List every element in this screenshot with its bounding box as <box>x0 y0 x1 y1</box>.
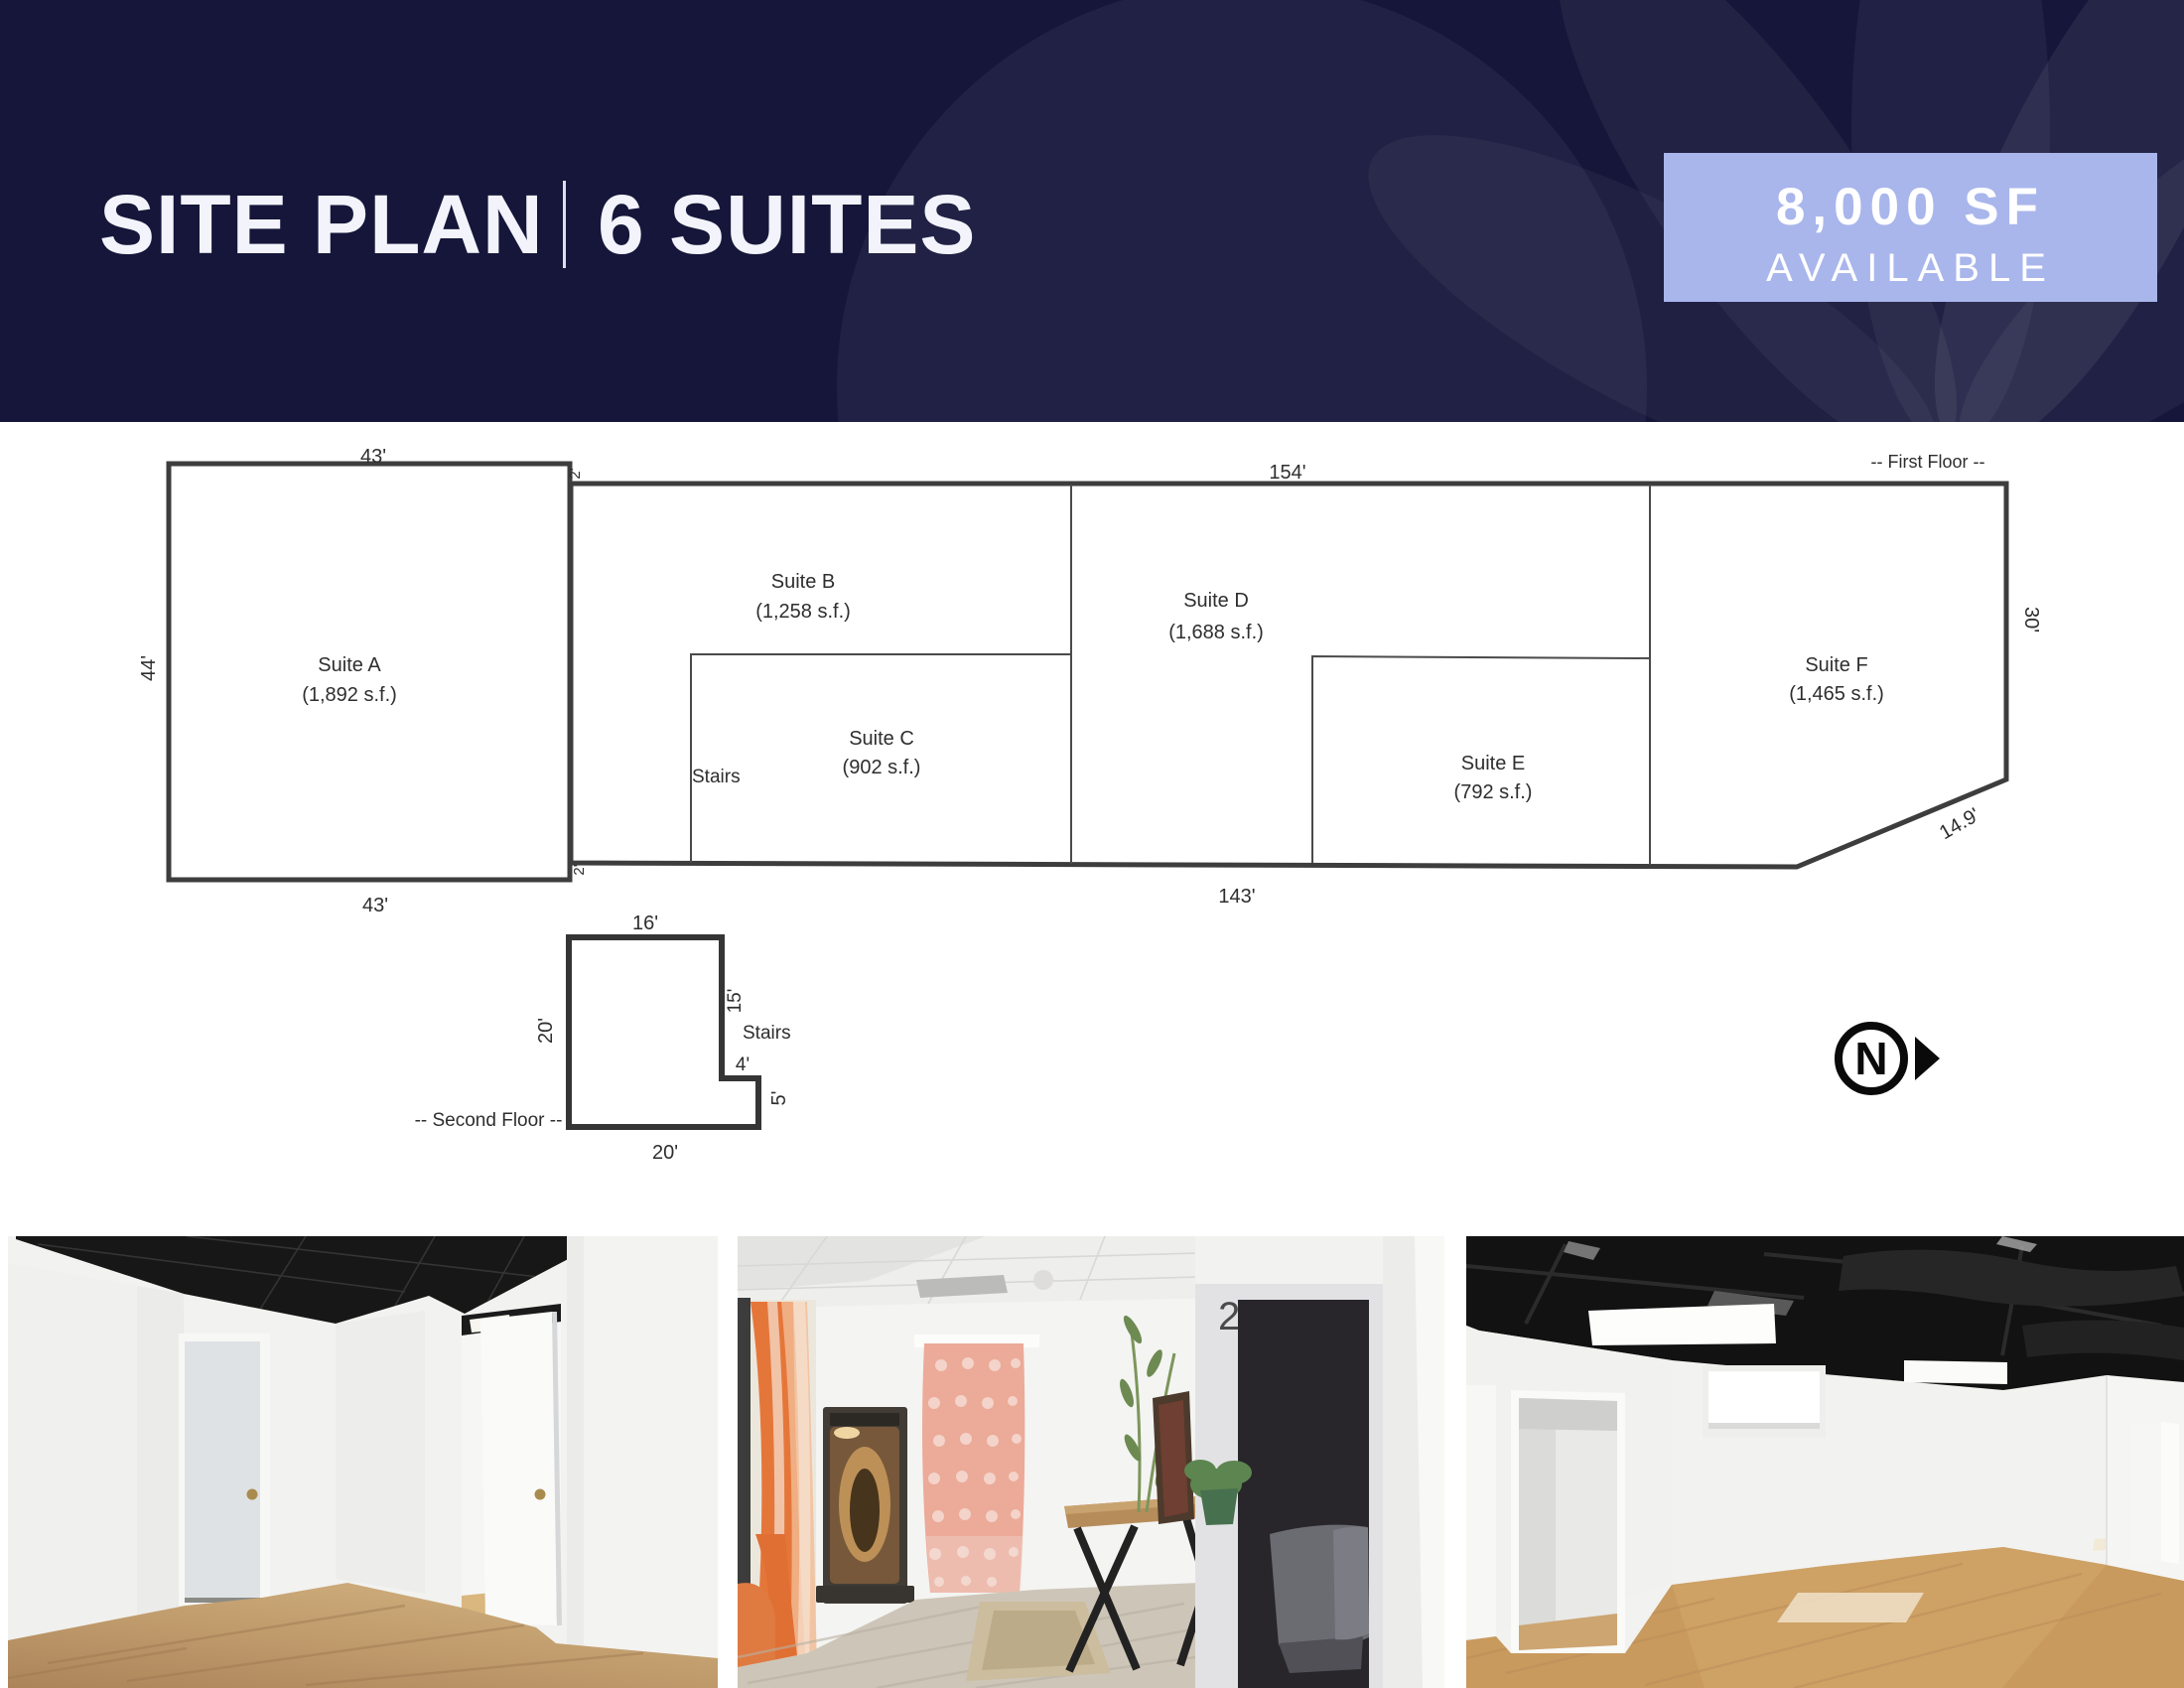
svg-text:43': 43' <box>362 895 388 916</box>
svg-text:20': 20' <box>652 1142 678 1164</box>
svg-text:Suite D: Suite D <box>1183 590 1249 612</box>
svg-text:Suite C: Suite C <box>849 728 914 750</box>
svg-text:2': 2' <box>571 864 588 875</box>
svg-text:(792 s.f.): (792 s.f.) <box>1454 781 1533 803</box>
svg-text:4': 4' <box>736 1055 750 1075</box>
svg-text:43': 43' <box>360 446 386 468</box>
svg-text:20': 20' <box>535 1018 557 1044</box>
svg-text:16': 16' <box>632 913 658 934</box>
svg-text:15': 15' <box>725 989 746 1014</box>
svg-text:30': 30' <box>2020 607 2042 633</box>
svg-text:(902 s.f.): (902 s.f.) <box>843 757 921 778</box>
svg-text:Stairs: Stairs <box>692 767 741 787</box>
svg-text:154': 154' <box>1269 462 1305 484</box>
svg-text:2: 2 <box>1218 1295 1240 1338</box>
svg-text:Stairs: Stairs <box>743 1023 791 1044</box>
svg-text:14.9': 14.9' <box>1936 804 1983 844</box>
svg-text:-- Second Floor --: -- Second Floor -- <box>415 1110 563 1131</box>
svg-text:(1,465 s.f.): (1,465 s.f.) <box>1789 683 1884 705</box>
svg-text:N: N <box>1854 1033 1887 1084</box>
svg-text:44': 44' <box>138 655 160 681</box>
svg-text:(1,688 s.f.): (1,688 s.f.) <box>1168 622 1264 643</box>
svg-text:5': 5' <box>768 1091 790 1106</box>
svg-text:143': 143' <box>1218 886 1255 908</box>
svg-text:Suite E: Suite E <box>1461 753 1525 774</box>
svg-text:Suite A: Suite A <box>318 654 381 676</box>
svg-text:(1,258 s.f.): (1,258 s.f.) <box>755 601 851 623</box>
svg-text:Suite F: Suite F <box>1805 654 1867 676</box>
svg-text:2': 2' <box>567 468 584 479</box>
svg-text:-- First Floor --: -- First Floor -- <box>1871 452 1985 472</box>
svg-text:Suite B: Suite B <box>771 571 835 593</box>
svg-text:(1,892 s.f.): (1,892 s.f.) <box>302 684 397 706</box>
